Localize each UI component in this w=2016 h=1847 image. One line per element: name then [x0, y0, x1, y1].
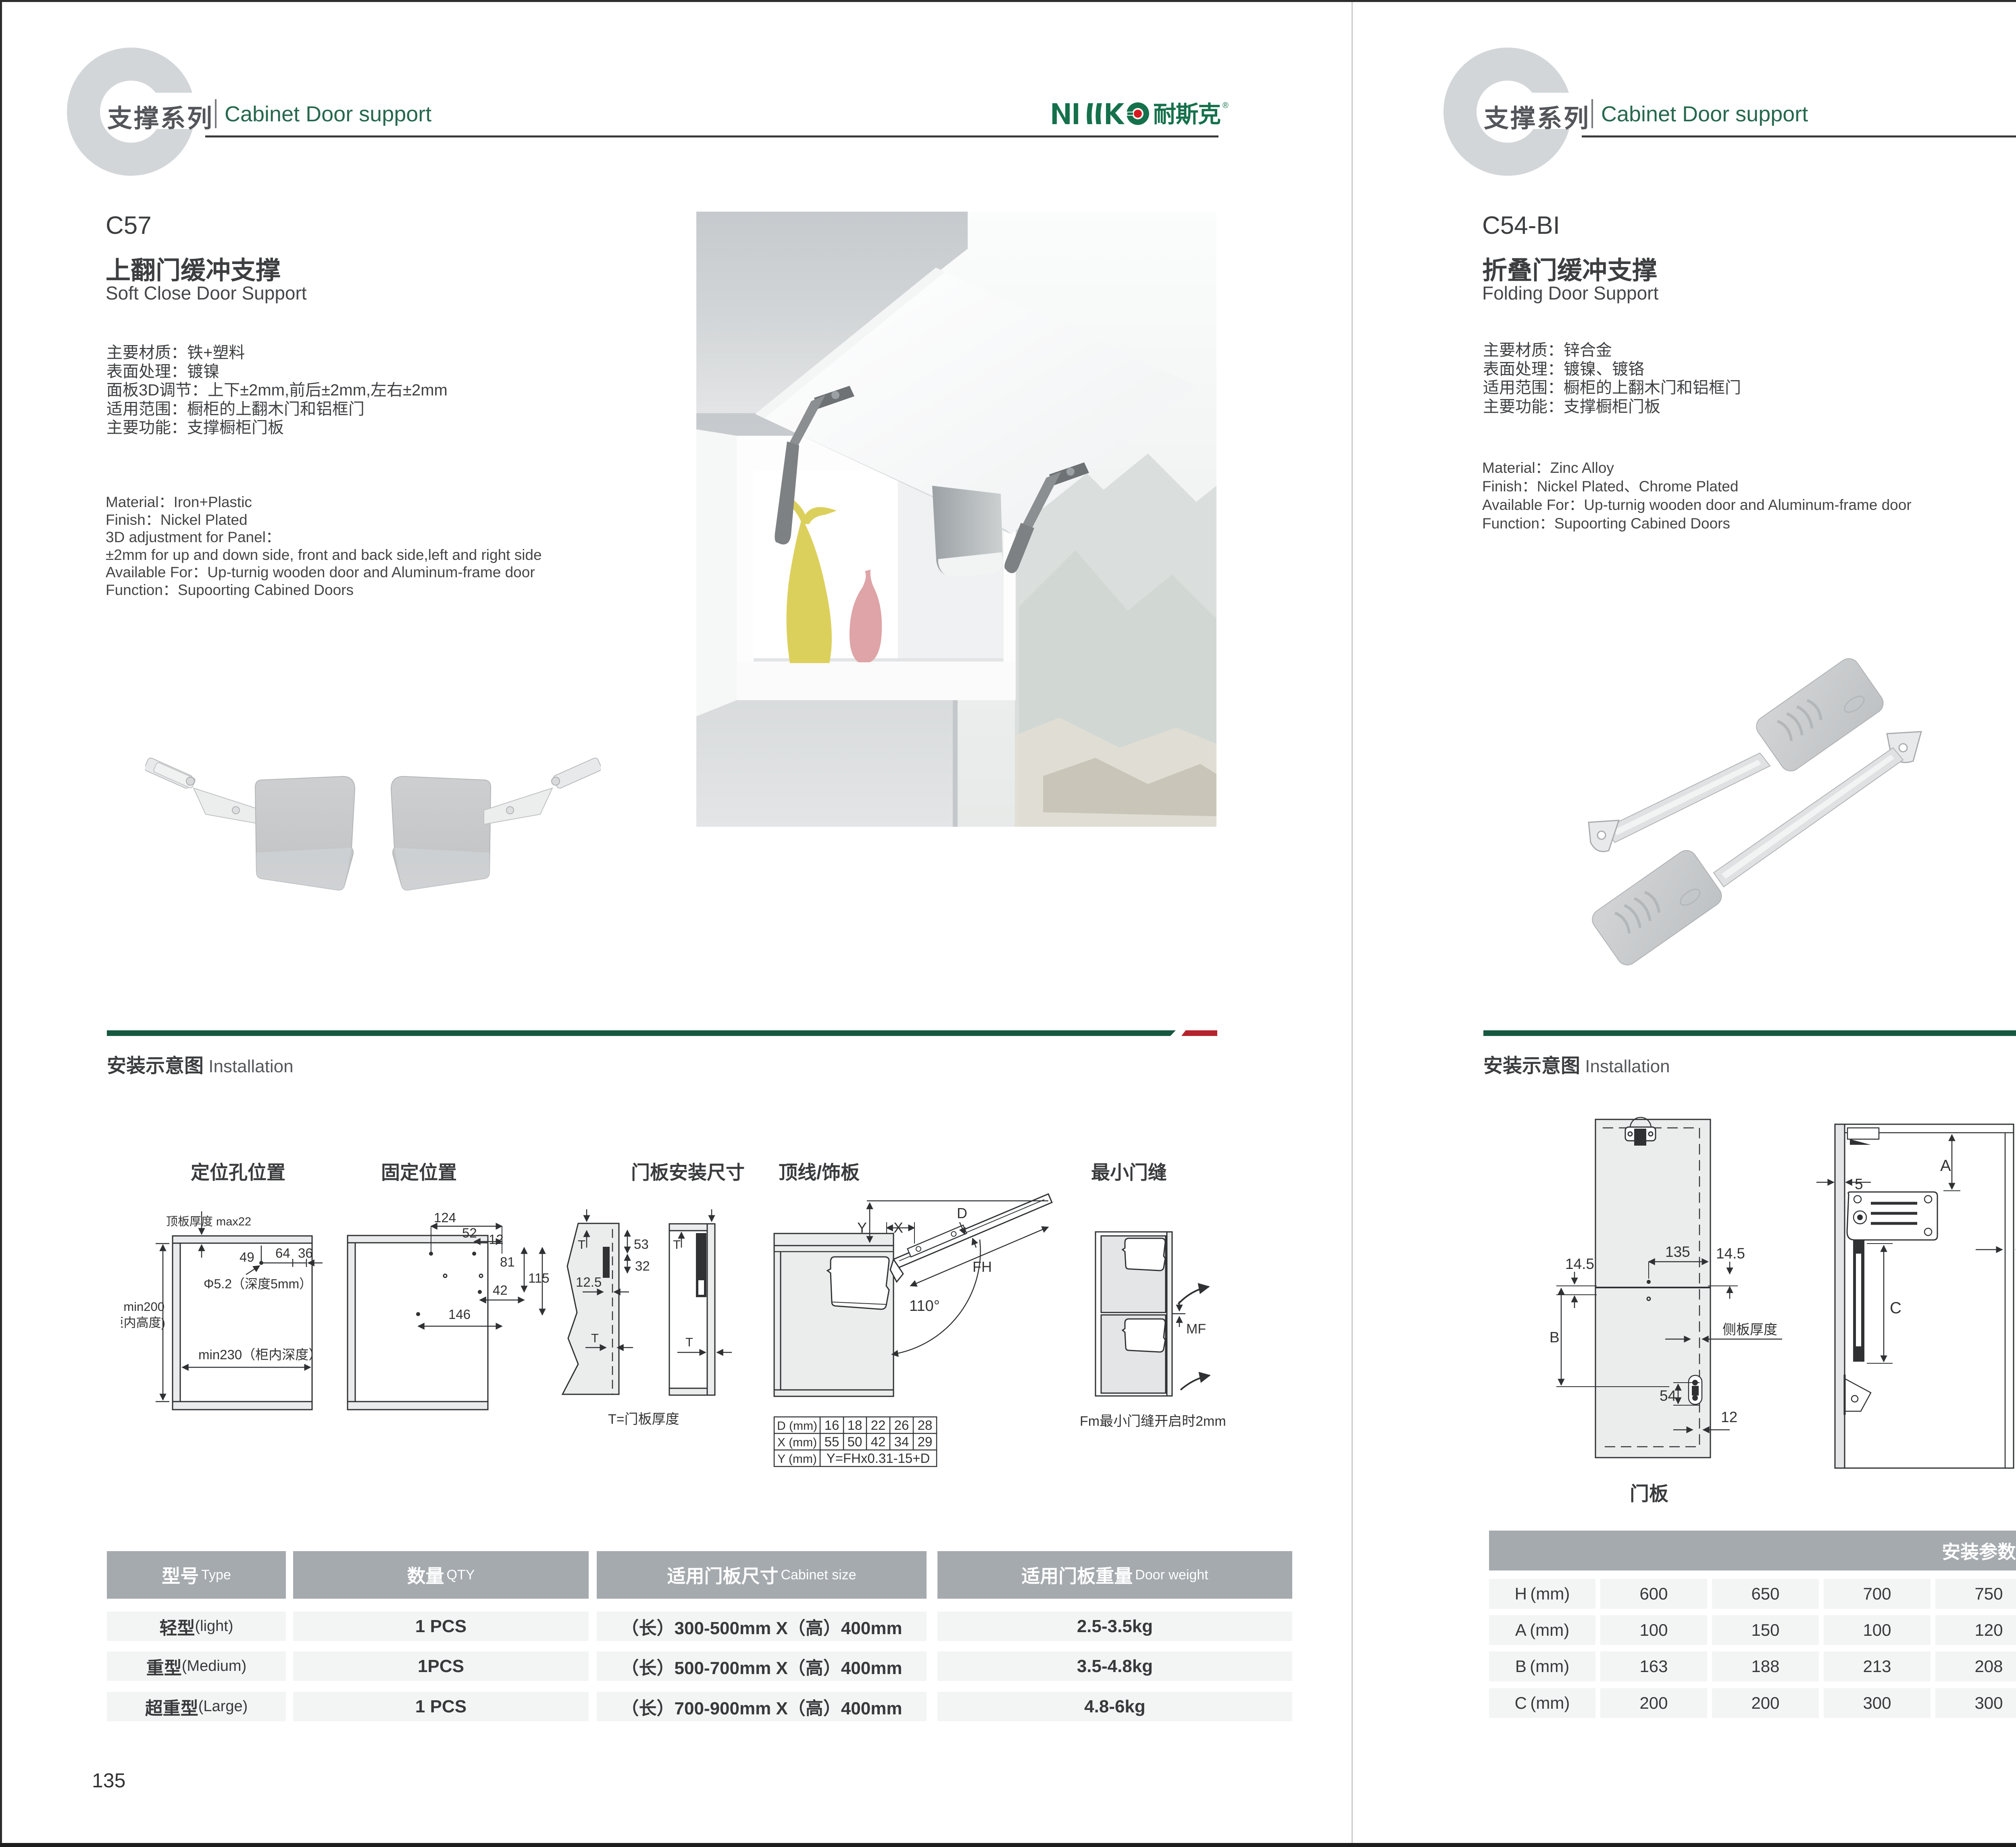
svg-text:顶板厚度 max22: 顶板厚度 max22 — [166, 1215, 251, 1228]
svg-text:T: T — [673, 1238, 681, 1252]
svg-text:12.5: 12.5 — [576, 1275, 602, 1290]
svg-text:12: 12 — [1721, 1409, 1737, 1425]
svg-text:X (mm): X (mm) — [777, 1436, 817, 1449]
svg-text:32: 32 — [635, 1258, 650, 1273]
svg-text:22: 22 — [871, 1418, 886, 1433]
svg-text:36: 36 — [298, 1246, 313, 1260]
svg-text:min230（柜内深度）: min230（柜内深度） — [198, 1347, 322, 1362]
svg-text:42: 42 — [493, 1283, 508, 1298]
svg-text:81: 81 — [500, 1254, 515, 1269]
svg-text:50: 50 — [848, 1434, 862, 1449]
svg-text:146: 146 — [448, 1307, 471, 1322]
svg-text:42: 42 — [871, 1434, 886, 1449]
svg-text:T=门板厚度: T=门板厚度 — [608, 1412, 679, 1427]
svg-text:115: 115 — [528, 1271, 550, 1285]
svg-text:耐斯克: 耐斯克 — [1153, 102, 1221, 127]
svg-text:MF: MF — [1186, 1321, 1206, 1337]
svg-text:53: 53 — [634, 1237, 649, 1252]
svg-text:64: 64 — [275, 1246, 290, 1260]
svg-text:门板安装尺寸: 门板安装尺寸 — [631, 1162, 745, 1183]
svg-text:T: T — [591, 1331, 599, 1345]
svg-text:14.5: 14.5 — [1565, 1256, 1594, 1272]
svg-text:28: 28 — [918, 1418, 933, 1433]
svg-text:54: 54 — [1660, 1387, 1676, 1404]
svg-text:FH: FH — [973, 1258, 992, 1275]
svg-text:34: 34 — [894, 1434, 909, 1449]
svg-text:110°: 110° — [909, 1298, 940, 1315]
svg-text:Fm最小门缝开启时2mm: Fm最小门缝开启时2mm — [1080, 1414, 1226, 1429]
svg-text:49: 49 — [240, 1250, 254, 1265]
svg-text:T: T — [685, 1335, 693, 1349]
svg-text:定位孔位置: 定位孔位置 — [191, 1162, 285, 1183]
svg-text:135: 135 — [1665, 1244, 1690, 1260]
svg-text:固定位置: 固定位置 — [381, 1162, 457, 1183]
svg-text:18: 18 — [848, 1418, 862, 1433]
svg-text:16: 16 — [825, 1418, 839, 1433]
svg-text:®: ® — [1223, 101, 1229, 110]
svg-text:29: 29 — [918, 1434, 933, 1449]
svg-text:52: 52 — [462, 1225, 477, 1240]
svg-text:26: 26 — [894, 1418, 909, 1433]
svg-text:Φ5.2（深度5mm）: Φ5.2（深度5mm） — [204, 1277, 312, 1291]
svg-text:Y: Y — [857, 1219, 867, 1236]
svg-text:14.5: 14.5 — [1716, 1245, 1745, 1262]
svg-text:D (mm): D (mm) — [777, 1419, 817, 1433]
svg-text:55: 55 — [825, 1434, 839, 1449]
svg-text:Y=FHx0.31-15+D: Y=FHx0.31-15+D — [827, 1451, 930, 1466]
svg-text:门板: 门板 — [1630, 1483, 1668, 1505]
svg-text:B: B — [1549, 1329, 1560, 1346]
svg-text:T: T — [578, 1238, 585, 1252]
svg-text:A: A — [1940, 1157, 1951, 1175]
svg-text:侧板厚度: 侧板厚度 — [1722, 1322, 1777, 1337]
svg-text:5: 5 — [1855, 1176, 1863, 1192]
svg-text:最小门缝: 最小门缝 — [1091, 1162, 1167, 1183]
svg-text:(柜内高度): (柜内高度) — [121, 1316, 165, 1330]
svg-text:C: C — [1890, 1299, 1901, 1317]
svg-text:D: D — [957, 1205, 967, 1221]
svg-text:124: 124 — [434, 1210, 456, 1225]
svg-text:顶线/饰板: 顶线/饰板 — [779, 1162, 860, 1183]
svg-text:min200: min200 — [123, 1300, 165, 1314]
svg-text:12: 12 — [489, 1232, 504, 1247]
svg-text:Y (mm): Y (mm) — [777, 1452, 817, 1466]
